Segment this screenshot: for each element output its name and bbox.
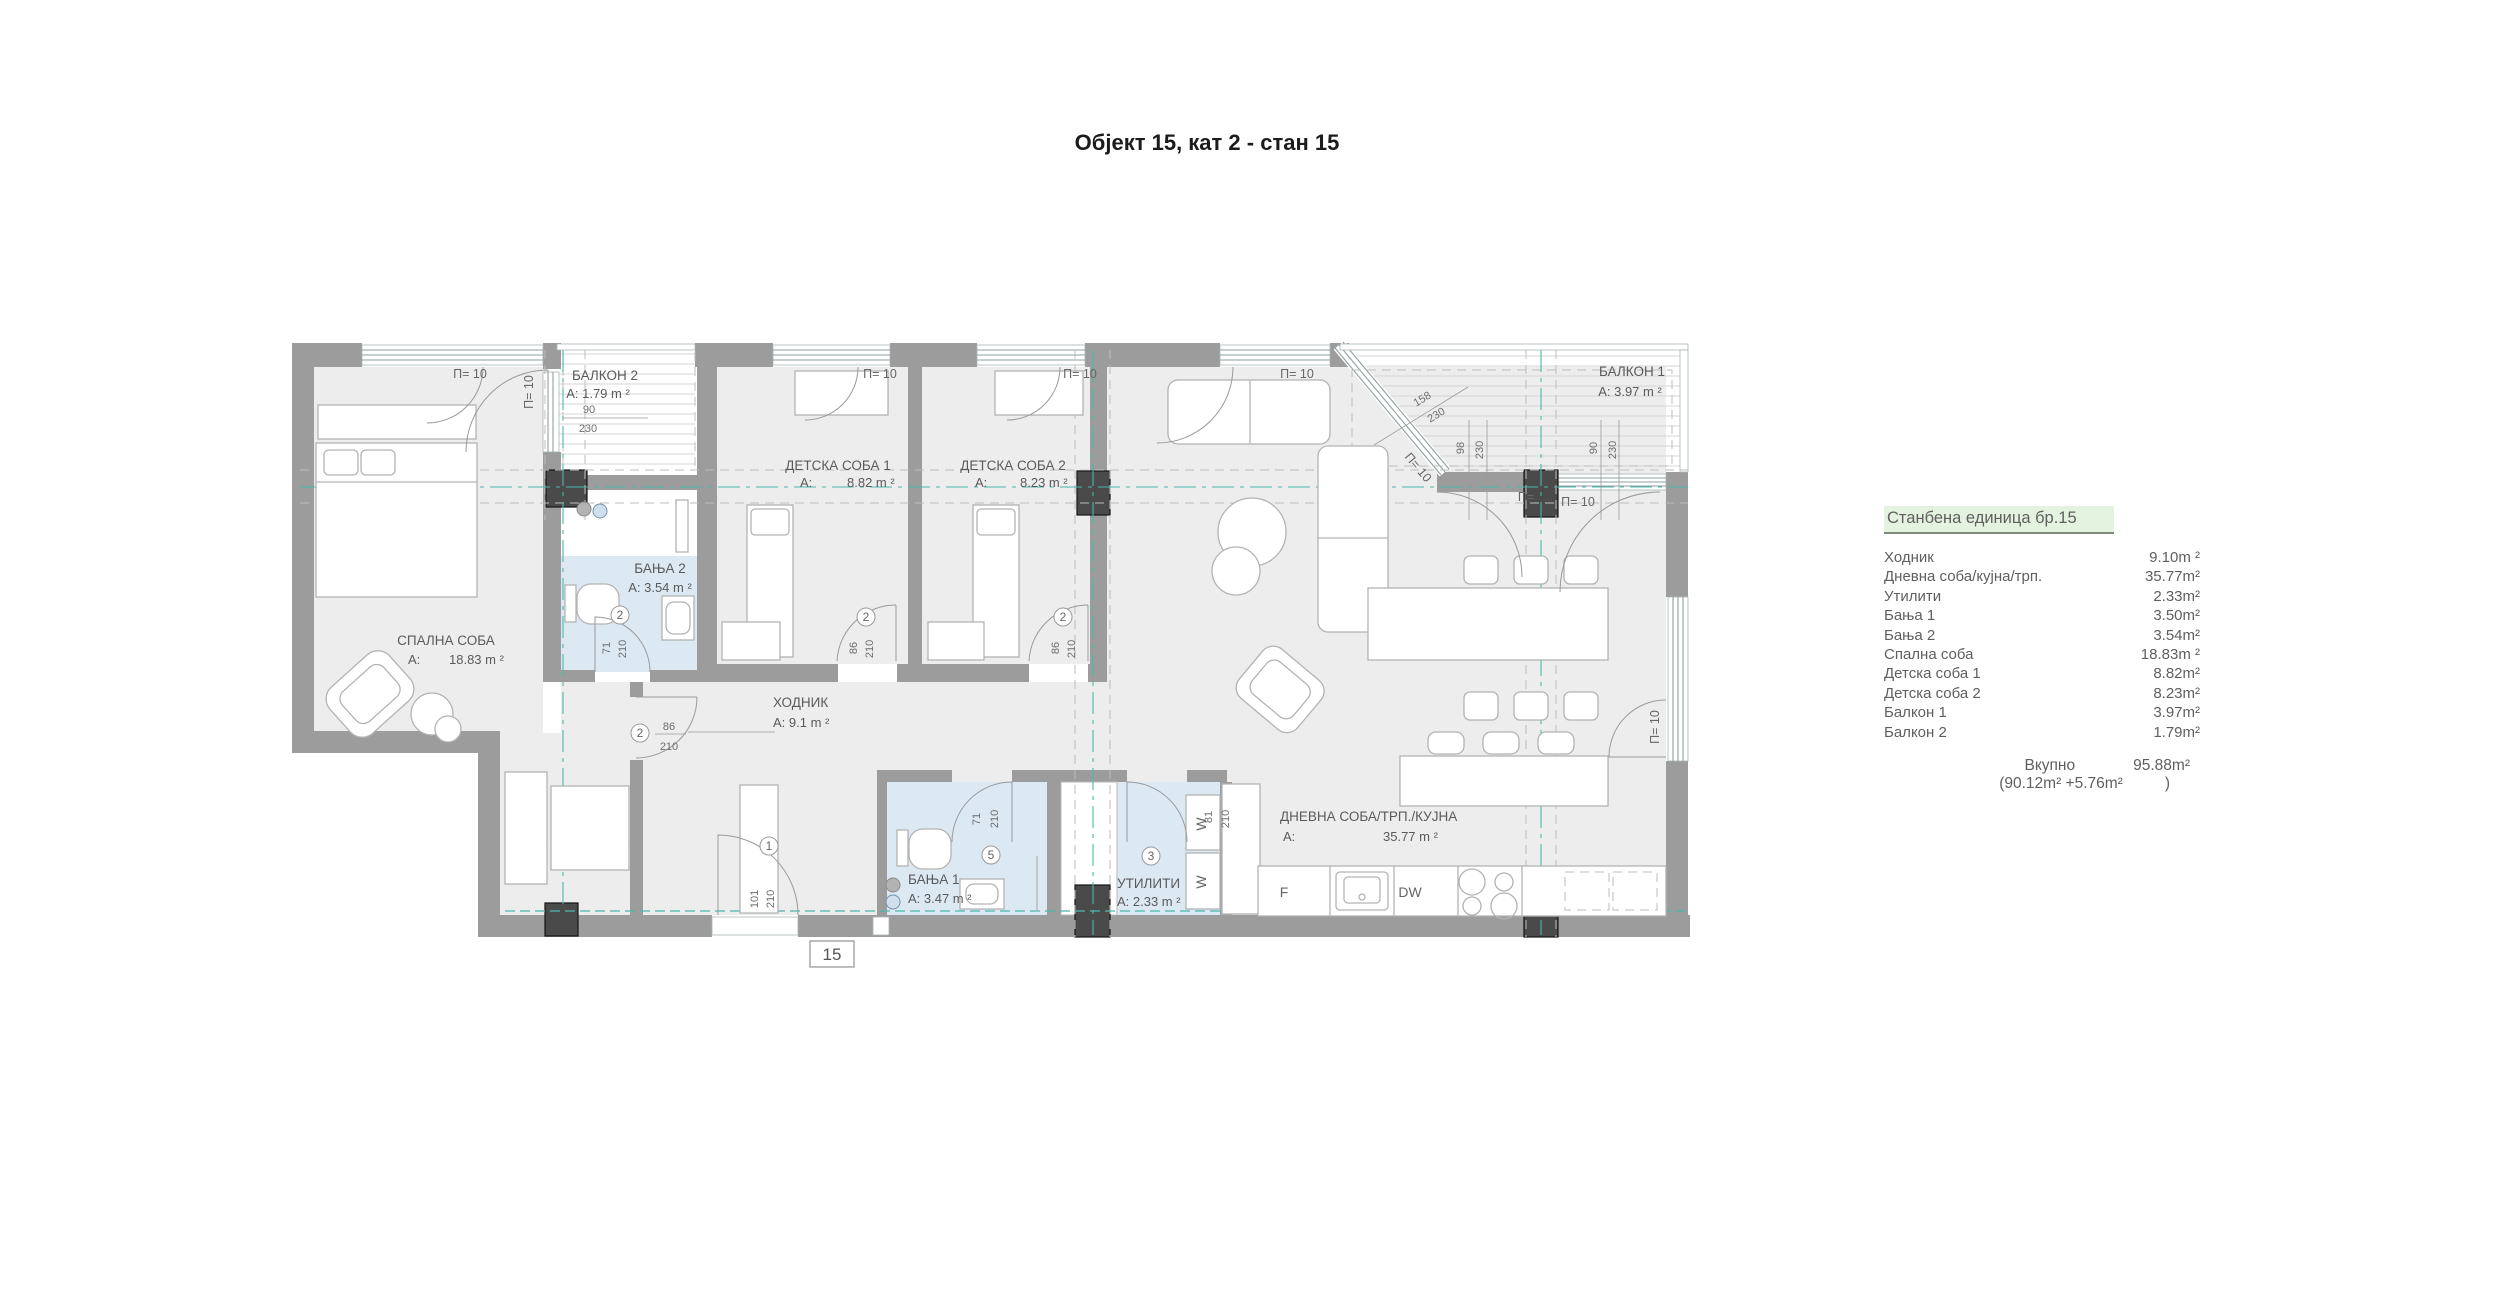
banja2-shower-panel bbox=[676, 500, 688, 552]
coffee-table-small bbox=[1212, 547, 1260, 595]
area-prefix-detska2: A: bbox=[975, 475, 987, 490]
door-number: 1 bbox=[766, 839, 773, 853]
banja2-sink bbox=[662, 596, 694, 640]
dishwasher-label: DW bbox=[1398, 884, 1422, 900]
door-number: 2 bbox=[863, 610, 870, 624]
legend-value: 3.50m² bbox=[2153, 606, 2200, 625]
area-detska2: 8.23 m ² bbox=[1020, 475, 1068, 490]
door-number: 3 bbox=[1148, 849, 1155, 863]
balcony1-door-window bbox=[1558, 474, 1666, 490]
legend-row: Детска соба 2 8.23m² bbox=[1884, 684, 2200, 703]
total-value: 95.88m² bbox=[2133, 757, 2190, 775]
window-label: П= 10 bbox=[1063, 367, 1097, 381]
room-label-bedroom: СПАЛНА СОБА bbox=[397, 633, 495, 648]
legend-row: Утилити 2.33m² bbox=[1884, 587, 2200, 606]
window-label: П= 10 bbox=[1280, 367, 1314, 381]
dim-210: 210 bbox=[765, 890, 777, 908]
legend-row: Бања 2 3.54m² bbox=[1884, 626, 2200, 645]
legend-row: Детска соба 1 8.82m² bbox=[1884, 664, 2200, 683]
banja2-toilet bbox=[565, 584, 619, 624]
water-heater-blue bbox=[593, 504, 607, 518]
area-bedroom: 18.83 m ² bbox=[449, 652, 505, 667]
dim-210: 210 bbox=[989, 810, 1001, 828]
legend-label: Спална соба bbox=[1884, 645, 1973, 664]
door-number-3-utility: 3 bbox=[1142, 847, 1160, 865]
legend-value: 18.83m ² bbox=[2141, 645, 2200, 664]
legend-label: Бања 2 bbox=[1884, 626, 1935, 645]
dim-90: 90 bbox=[1588, 442, 1600, 454]
area-banja2: A: 3.54 m ² bbox=[628, 580, 692, 595]
room-label-balcony1: БАЛКОН 1 bbox=[1599, 364, 1665, 379]
legend-value: 8.23m² bbox=[2153, 684, 2200, 703]
kids2-window bbox=[977, 345, 1085, 365]
legend-label: Утилити bbox=[1884, 587, 1941, 606]
legend-label: Детска соба 2 bbox=[1884, 684, 1981, 703]
room-label-hodnik: ХОДНИК bbox=[773, 695, 828, 710]
water-heater bbox=[886, 878, 900, 892]
dim-210: 210 bbox=[1066, 640, 1078, 658]
area-prefix-detska1: A: bbox=[800, 475, 812, 490]
dim-71: 71 bbox=[601, 642, 613, 654]
legend: Станбена единица бр.15 Ходник 9.10m ² Дн… bbox=[1884, 506, 2200, 793]
door-number-5-banja1: 5 bbox=[982, 846, 1000, 864]
dim-86: 86 bbox=[1050, 642, 1062, 654]
washer-label: W bbox=[1193, 817, 1209, 831]
double-bed bbox=[316, 405, 477, 597]
legend-value: 8.82m² bbox=[2153, 664, 2200, 683]
room-label-utility: УТИЛИТИ bbox=[1117, 876, 1180, 891]
legend-label: Ходник bbox=[1884, 548, 1934, 567]
door-number: 2 bbox=[617, 608, 624, 622]
total-breakdown-close: ) bbox=[2165, 775, 2170, 793]
dim-210: 210 bbox=[864, 640, 876, 658]
legend-value: 2.33m² bbox=[2153, 587, 2200, 606]
unit-number: 15 bbox=[823, 945, 842, 964]
area-balcony2: A: 1.79 m ² bbox=[566, 386, 630, 401]
legend-label: Дневна соба/кујна/трп. bbox=[1884, 567, 2042, 586]
dim-101: 101 bbox=[749, 890, 761, 908]
legend-row: Балкон 2 1.79m² bbox=[1884, 723, 2200, 742]
legend-value: 3.54m² bbox=[2153, 626, 2200, 645]
legend-value: 1.79m² bbox=[2153, 723, 2200, 742]
legend-row: Ходник 9.10m ² bbox=[1884, 548, 2200, 567]
door-number: 2 bbox=[637, 726, 644, 740]
legend-row: Дневна соба/кујна/трп. 35.77m² bbox=[1884, 567, 2200, 586]
dim-210: 210 bbox=[660, 741, 678, 753]
legend-row: Балкон 1 3.97m² bbox=[1884, 703, 2200, 722]
legend-row: Спална соба 18.83m ² bbox=[1884, 645, 2200, 664]
legend-row: Бања 1 3.50m² bbox=[1884, 606, 2200, 625]
door-number-2-kids2: 2 bbox=[1054, 608, 1072, 626]
kids1-window bbox=[773, 345, 890, 365]
window-label: П= 10 bbox=[863, 367, 897, 381]
area-detska1: 8.82 m ² bbox=[847, 475, 895, 490]
dim-balcony2-h: 230 bbox=[579, 423, 597, 435]
right-wall-balcony-door bbox=[1668, 597, 1688, 761]
door-number-1-entry: 1 bbox=[760, 837, 778, 855]
room-label-banja2: БАЊА 2 bbox=[634, 561, 685, 576]
area-banja1: A: 3.47 m ² bbox=[908, 891, 972, 906]
legend-value: 9.10m ² bbox=[2149, 548, 2200, 567]
room-label-living: ДНЕВНА СОБА/ТРП./КУЈНА bbox=[1280, 809, 1457, 824]
legend-rows: Ходник 9.10m ² Дневна соба/кујна/трп. 35… bbox=[1884, 548, 2200, 742]
fridge-label: F bbox=[1280, 884, 1289, 900]
legend-label: Балкон 2 bbox=[1884, 723, 1947, 742]
room-label-banja1: БАЊА 1 bbox=[908, 872, 959, 887]
room-label-detska1: ДЕТСКА СОБА 1 bbox=[785, 458, 891, 473]
bedroom-window bbox=[362, 345, 543, 365]
door-number-2-bedroom: 2 bbox=[631, 724, 649, 742]
area-balcony1: A: 3.97 m ² bbox=[1598, 384, 1662, 399]
area-prefix-bedroom: A: bbox=[408, 652, 420, 667]
door-number-2-balcony: 2 bbox=[611, 606, 629, 624]
dim-230: 230 bbox=[1607, 441, 1619, 459]
total-breakdown: (90.12m² +5.76m² bbox=[1999, 775, 2123, 793]
window-label-short: П= bbox=[1518, 490, 1534, 504]
door-number-2-kids1: 2 bbox=[857, 608, 875, 626]
legend-value: 35.77m² bbox=[2145, 567, 2200, 586]
window-label: П= 10 bbox=[1561, 495, 1595, 509]
window-label: П= 10 bbox=[453, 367, 487, 381]
room-label-balcony2: БАЛКОН 2 bbox=[572, 368, 638, 383]
legend-label: Балкон 1 bbox=[1884, 703, 1947, 722]
washer-label: W bbox=[1193, 875, 1209, 889]
dim-98: 98 bbox=[1455, 442, 1467, 454]
dim-balcony2-w: 90 bbox=[583, 404, 595, 416]
area-hodnik: A: 9.1 m ² bbox=[773, 715, 830, 730]
water-heater-blue bbox=[886, 895, 900, 909]
legend-total: Вкупно 95.88m² (90.12m² +5.76m² ) bbox=[1884, 757, 2200, 793]
room-label-detska2: ДЕТСКА СОБА 2 bbox=[960, 458, 1066, 473]
side-table-small bbox=[435, 716, 461, 742]
total-label: Вкупно bbox=[2025, 757, 2076, 775]
legend-label: Бања 1 bbox=[1884, 606, 1935, 625]
window-label: П= 10 bbox=[1648, 710, 1662, 744]
unit-number-badge: 15 bbox=[810, 941, 854, 967]
area-utility: A: 2.33 m ² bbox=[1117, 894, 1181, 909]
area-living: 35.77 m ² bbox=[1383, 829, 1439, 844]
dim-86: 86 bbox=[663, 721, 675, 733]
dim-210: 210 bbox=[1220, 810, 1232, 828]
legend-label: Детска соба 1 bbox=[1884, 664, 1981, 683]
dim-71: 71 bbox=[971, 813, 983, 825]
door-number: 2 bbox=[1060, 610, 1067, 624]
window-label: П= 10 bbox=[522, 375, 536, 409]
kids2-wardrobe bbox=[928, 622, 984, 660]
legend-header: Станбена единица бр.15 bbox=[1884, 506, 2114, 534]
dim-86: 86 bbox=[848, 642, 860, 654]
kids1-wardrobe bbox=[722, 622, 780, 660]
banja1-toilet bbox=[897, 829, 951, 869]
dim-230: 230 bbox=[1474, 441, 1486, 459]
water-heater bbox=[577, 502, 591, 516]
door-number: 5 bbox=[988, 848, 995, 862]
living-window bbox=[1220, 345, 1330, 365]
dim-210: 210 bbox=[617, 640, 629, 658]
legend-value: 3.97m² bbox=[2153, 703, 2200, 722]
area-prefix-living: A: bbox=[1283, 829, 1295, 844]
